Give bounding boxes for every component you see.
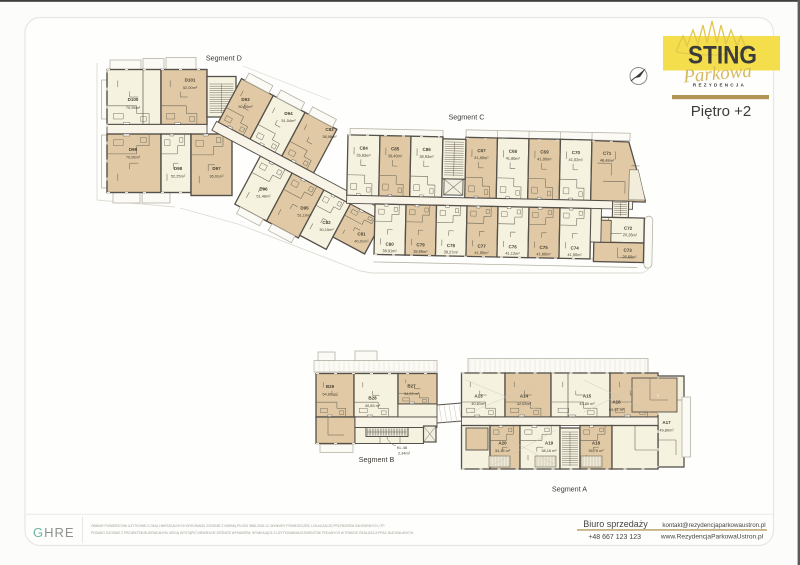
svg-text:D93: D93 <box>241 97 250 102</box>
svg-text:A20: A20 <box>498 441 507 446</box>
svg-text:A19: A19 <box>545 441 554 446</box>
svg-text:B27: B27 <box>407 384 416 389</box>
svg-text:C77: C77 <box>478 244 487 249</box>
svg-text:C86: C86 <box>423 147 432 152</box>
svg-text:D97: D97 <box>212 166 221 171</box>
svg-text:C75: C75 <box>540 245 549 250</box>
svg-text:34,15 m²: 34,15 m² <box>495 448 511 453</box>
svg-text:30,15m²: 30,15m² <box>319 227 334 232</box>
svg-text:51,54m²: 51,54m² <box>281 118 296 123</box>
svg-text:C67: C67 <box>477 148 486 153</box>
svg-text:D95: D95 <box>300 206 309 211</box>
svg-text:41,90m²: 41,90m² <box>567 252 582 257</box>
svg-text:A14: A14 <box>520 394 529 399</box>
svg-text:A15: A15 <box>583 394 592 399</box>
svg-text:C69: C69 <box>540 149 549 154</box>
svg-text:40,61m²: 40,61m² <box>471 401 486 406</box>
svg-text:D99: D99 <box>129 147 138 152</box>
svg-text:Piętro +2: Piętro +2 <box>691 103 751 120</box>
svg-text:43,80 m²: 43,80 m² <box>579 401 595 406</box>
svg-text:Segment C: Segment C <box>449 113 485 122</box>
svg-text:40,83 m²: 40,83 m² <box>365 403 381 408</box>
svg-text:A17: A17 <box>662 420 671 425</box>
svg-text:+48 667 123 123: +48 667 123 123 <box>588 534 641 541</box>
svg-text:38,98m²: 38,98m² <box>322 134 337 139</box>
svg-text:Segment A: Segment A <box>552 485 587 494</box>
svg-text:41,02m²: 41,02m² <box>569 157 584 162</box>
svg-text:kontakt@rezydencjaparkowaustro: kontakt@rezydencjaparkowaustron.pl <box>662 522 765 529</box>
svg-text:C74: C74 <box>570 246 579 251</box>
svg-text:38,16 m²: 38,16 m² <box>541 448 557 453</box>
svg-text:70,95m²: 70,95m² <box>126 155 141 160</box>
svg-text:46,48m²: 46,48m² <box>600 158 615 163</box>
svg-text:D94: D94 <box>284 111 293 116</box>
svg-text:Segment D: Segment D <box>206 54 242 63</box>
svg-text:38,69m²: 38,69m² <box>413 249 428 254</box>
svg-text:C83: C83 <box>325 127 334 132</box>
svg-text:42,63m²: 42,63m² <box>517 401 532 406</box>
svg-text:C79: C79 <box>416 242 425 247</box>
svg-text:OBMIAR POWIERZCHNI UŻYTKOWEJ L: OBMIAR POWIERZCHNI UŻYTKOWEJ LOKALI MIES… <box>91 523 385 528</box>
svg-text:26,60m²: 26,60m² <box>622 254 637 259</box>
svg-text:41,12m²: 41,12m² <box>505 251 520 256</box>
svg-text:GHRE: GHRE <box>33 525 75 540</box>
svg-text:D98: D98 <box>174 166 183 171</box>
svg-text:54,89 m²: 54,89 m² <box>322 392 338 397</box>
svg-text:52,00m²: 52,00m² <box>183 85 198 90</box>
svg-text:41,90m²: 41,90m² <box>474 250 489 255</box>
svg-text:B29: B29 <box>326 384 335 389</box>
svg-text:41,80m²: 41,80m² <box>506 156 521 161</box>
svg-text:A18: A18 <box>592 441 601 446</box>
svg-text:KL.48: KL.48 <box>397 445 407 450</box>
svg-text:41,80m²: 41,80m² <box>474 155 489 160</box>
svg-text:C76: C76 <box>509 244 518 249</box>
svg-text:REZYDENCJA: REZYDENCJA <box>693 83 746 88</box>
svg-text:C68: C68 <box>509 149 518 154</box>
svg-text:PODANO ZGODNIE Z PROJEKTEM BUD: PODANO ZGODNIE Z PROJEKTEM BUDOWLANYM. M… <box>91 530 414 535</box>
svg-text:Segment B: Segment B <box>359 455 395 464</box>
svg-text:C73: C73 <box>623 248 632 253</box>
svg-text:C78: C78 <box>447 243 456 248</box>
svg-text:36,76 m²: 36,76 m² <box>588 448 604 453</box>
svg-text:52,25m²: 52,25m² <box>171 174 186 179</box>
svg-text:38,40m²: 38,40m² <box>388 153 403 158</box>
svg-text:C81: C81 <box>357 232 366 237</box>
svg-text:49,80m²: 49,80m² <box>659 428 674 433</box>
svg-text:41,90m²: 41,90m² <box>536 251 551 256</box>
svg-text:59,91 m²: 59,91 m² <box>609 407 625 412</box>
svg-text:51,10m²: 51,10m² <box>297 213 312 218</box>
svg-text:www.RezydencjaParkowaUstron.pl: www.RezydencjaParkowaUstron.pl <box>660 534 764 541</box>
svg-text:D96: D96 <box>259 187 268 192</box>
svg-text:41,80m²: 41,80m² <box>537 156 552 161</box>
svg-text:51,48m²: 51,48m² <box>256 194 271 199</box>
svg-text:C70: C70 <box>572 150 581 155</box>
svg-text:A13: A13 <box>474 394 483 399</box>
svg-text:38,93m²: 38,93m² <box>419 154 434 159</box>
svg-text:40,01m²: 40,01m² <box>354 239 369 244</box>
svg-text:C82: C82 <box>322 220 331 225</box>
svg-text:D100: D100 <box>128 97 139 102</box>
svg-text:39,27m²: 39,27m² <box>444 249 459 254</box>
svg-text:C71: C71 <box>603 151 612 156</box>
svg-text:2,34m²: 2,34m² <box>398 451 411 456</box>
svg-text:38,91m²: 38,91m² <box>382 248 397 253</box>
svg-text:70,95m²: 70,95m² <box>126 105 141 110</box>
svg-text:D101: D101 <box>185 78 196 83</box>
svg-text:Biuro sprzedaży: Biuro sprzedaży <box>583 519 648 529</box>
svg-text:B28: B28 <box>368 396 377 401</box>
svg-text:35,63m²: 35,63m² <box>356 153 371 158</box>
svg-text:C72: C72 <box>624 226 633 231</box>
svg-text:C85: C85 <box>391 146 400 151</box>
svg-text:C80: C80 <box>386 242 395 247</box>
svg-text:C84: C84 <box>360 146 369 151</box>
svg-text:25,26m²: 25,26m² <box>623 232 638 237</box>
svg-text:34,03 m²: 34,03 m² <box>404 391 420 396</box>
svg-text:A16: A16 <box>612 400 621 405</box>
svg-text:36,91m²: 36,91m² <box>209 174 224 179</box>
svg-text:50,90m²: 50,90m² <box>238 104 253 109</box>
